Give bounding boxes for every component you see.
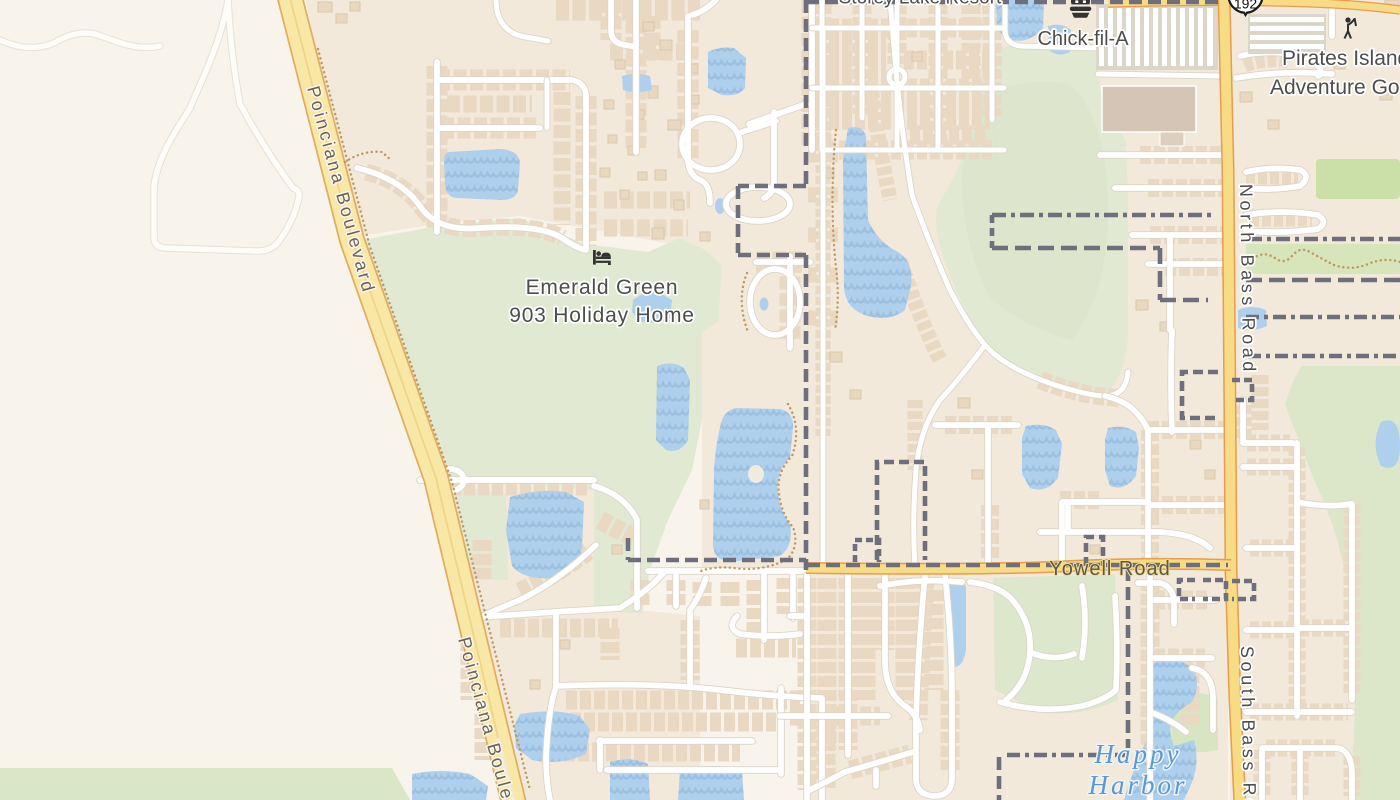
svg-text:Emerald Green: Emerald Green (526, 276, 679, 299)
svg-text:South Bass Road: South Bass Road (1237, 646, 1260, 800)
svg-text:Adventure Go: Adventure Go (1270, 76, 1400, 99)
svg-text:Happy: Happy (1094, 739, 1182, 769)
svg-text:North Bass Road: North Bass Road (1236, 184, 1259, 375)
svg-text:Pirates Island: Pirates Island (1282, 47, 1400, 70)
svg-text:Storey Lake Resort: Storey Lake Resort (839, 0, 1002, 9)
svg-text:192: 192 (1234, 0, 1258, 12)
svg-text:Chick-fil-A: Chick-fil-A (1037, 28, 1129, 50)
svg-text:903 Holiday Home: 903 Holiday Home (509, 304, 695, 327)
svg-text:Yowell Road: Yowell Road (1049, 558, 1170, 580)
svg-text:Harbor: Harbor (1087, 770, 1187, 800)
